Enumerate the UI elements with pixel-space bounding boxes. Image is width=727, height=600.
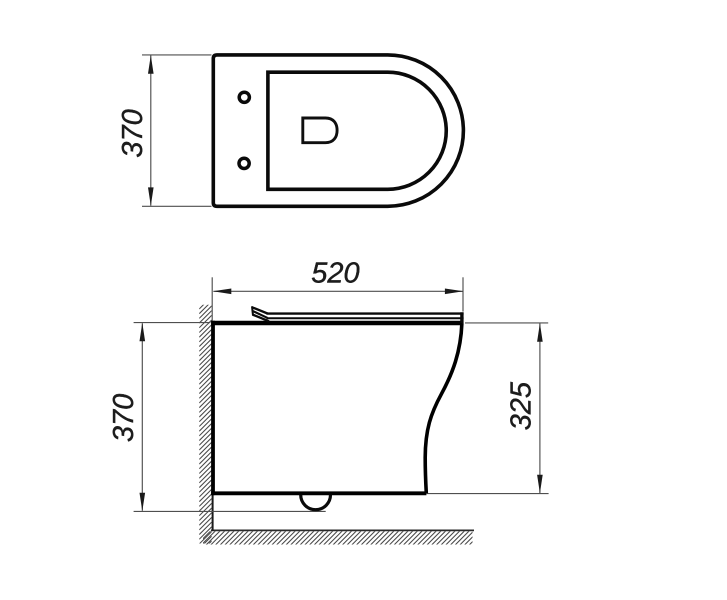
- svg-text:370: 370: [117, 109, 149, 157]
- svg-text:325: 325: [506, 381, 538, 430]
- svg-text:520: 520: [311, 258, 359, 290]
- svg-text:370: 370: [108, 394, 140, 442]
